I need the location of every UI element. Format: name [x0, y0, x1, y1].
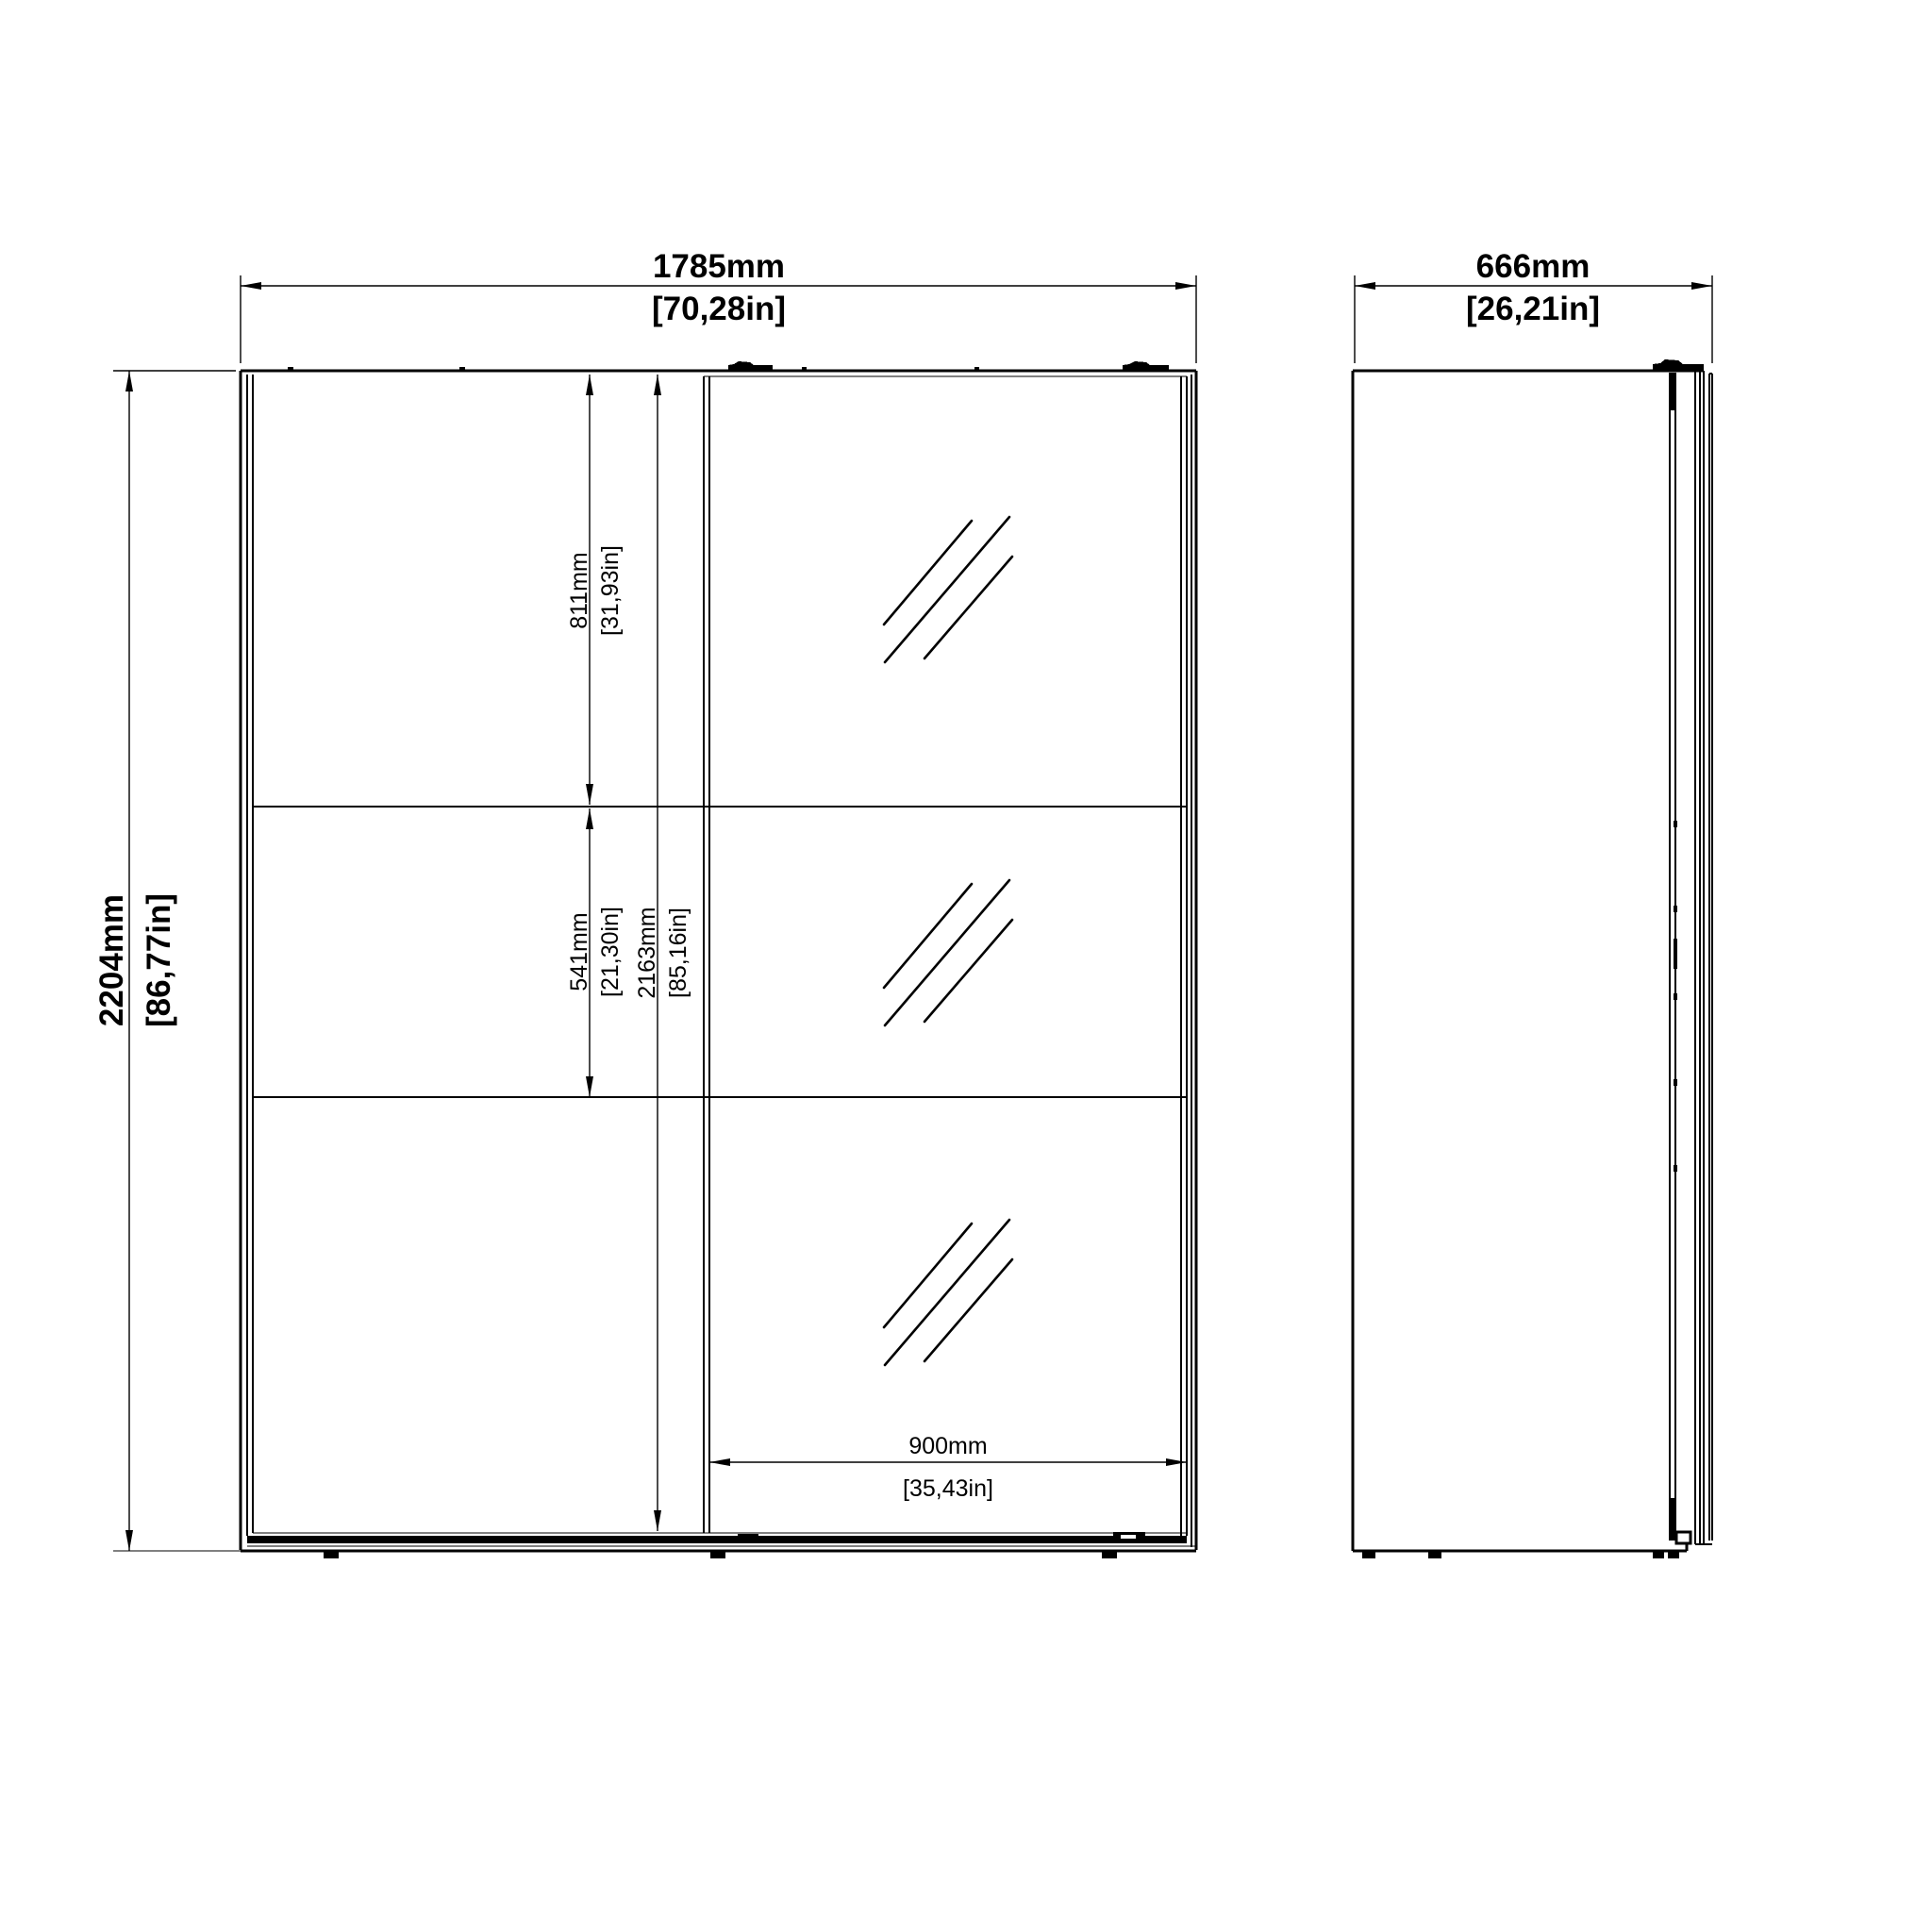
side-top-roller-icon	[1653, 359, 1704, 371]
dimension-door-width: 900mm [35,43in]	[709, 1433, 1187, 1502]
arrow-up-icon	[586, 375, 593, 395]
arrow-up-icon	[586, 808, 593, 829]
depth-inch-label: [26,21in]	[1466, 291, 1600, 327]
top-screw-mark-3	[802, 367, 807, 371]
mirror-hatch-top	[884, 517, 1012, 662]
arrow-down-icon	[125, 1530, 133, 1551]
arrow-down-icon	[586, 1076, 593, 1097]
arrow-right-icon	[1166, 1458, 1187, 1466]
dimension-interior-height: 2163mm [85,16in]	[634, 375, 691, 1531]
side-foot-4	[1668, 1551, 1679, 1558]
middle-section-inch-label: [21,30in]	[597, 907, 624, 997]
side-strip-nub-2	[1674, 906, 1677, 912]
technical-drawing-canvas: 1785mm [70,28in] 666mm [26,21in] 2204mm …	[0, 0, 1932, 1932]
height-mm-label: 2204mm	[93, 894, 130, 1026]
side-door-face-lines	[1709, 374, 1712, 1541]
dimension-top-section: 811mm [31,93in]	[566, 375, 624, 805]
side-strip-nub-1	[1674, 821, 1677, 827]
side-view	[1353, 359, 1712, 1558]
door-width-inch-label: [35,43in]	[903, 1475, 993, 1502]
top-roller-right-icon	[1123, 361, 1169, 371]
dimension-middle-section: 541mm [21,30in]	[566, 808, 624, 1097]
arrow-left-icon	[709, 1458, 730, 1466]
arrow-up-icon	[654, 375, 661, 395]
arrow-left-icon	[241, 282, 261, 290]
top-screw-mark-2	[459, 367, 465, 371]
front-outline	[241, 371, 1196, 1550]
side-bottom-bracket	[1676, 1532, 1690, 1543]
front-foot-right	[1102, 1551, 1117, 1558]
front-foot-center	[710, 1551, 725, 1558]
middle-section-mm-label: 541mm	[566, 912, 592, 991]
dimension-depth: 666mm [26,21in]	[1355, 248, 1712, 363]
side-strip-nub-5	[1674, 1079, 1677, 1086]
bottom-rail-bar	[247, 1536, 1187, 1543]
front-width-inch-label: [70,28in]	[652, 291, 786, 327]
front-width-mm-label: 1785mm	[653, 248, 785, 285]
arrow-left-icon	[1355, 282, 1375, 290]
top-section-inch-label: [31,93in]	[597, 545, 624, 636]
front-foot-left	[324, 1551, 339, 1558]
side-strip-nub-3	[1674, 939, 1677, 969]
arrow-down-icon	[586, 784, 593, 805]
top-screw-mark-1	[288, 367, 293, 371]
arrow-right-icon	[1691, 282, 1712, 290]
mirror-hatch-marks	[884, 517, 1012, 1365]
interior-height-inch-label: [85,16in]	[665, 908, 691, 998]
mirror-hatch-bottom	[884, 1220, 1012, 1365]
dimension-front-width: 1785mm [70,28in]	[241, 248, 1196, 363]
side-strip-nub-4	[1674, 993, 1677, 1000]
side-strip-top-hardware	[1669, 373, 1676, 410]
right-door-edges	[1181, 375, 1191, 1547]
arrow-down-icon	[654, 1510, 661, 1531]
top-roller-left-icon	[728, 361, 773, 371]
side-outline	[1353, 371, 1704, 1551]
left-door-edges	[247, 375, 253, 1536]
side-foot-1	[1362, 1551, 1375, 1558]
mirror-hatch-middle	[884, 880, 1012, 1025]
door-width-mm-label: 900mm	[908, 1433, 987, 1459]
side-strip-nub-6	[1674, 1165, 1677, 1172]
side-foot-2	[1428, 1551, 1441, 1558]
arrow-up-icon	[125, 371, 133, 391]
bottom-roller-left-icon	[738, 1534, 758, 1542]
interior-height-mm-label: 2163mm	[634, 907, 660, 998]
bottom-roller-right-notch	[1121, 1535, 1136, 1539]
center-door-overlap-edges	[704, 376, 709, 1533]
arrow-right-icon	[1175, 282, 1196, 290]
height-inch-label: [86,77in]	[141, 893, 177, 1027]
depth-mm-label: 666mm	[1476, 248, 1591, 285]
top-screw-mark-4	[974, 367, 979, 371]
top-section-mm-label: 811mm	[566, 552, 592, 629]
side-foot-3	[1653, 1551, 1664, 1558]
dimension-height: 2204mm [86,77in]	[93, 371, 236, 1551]
